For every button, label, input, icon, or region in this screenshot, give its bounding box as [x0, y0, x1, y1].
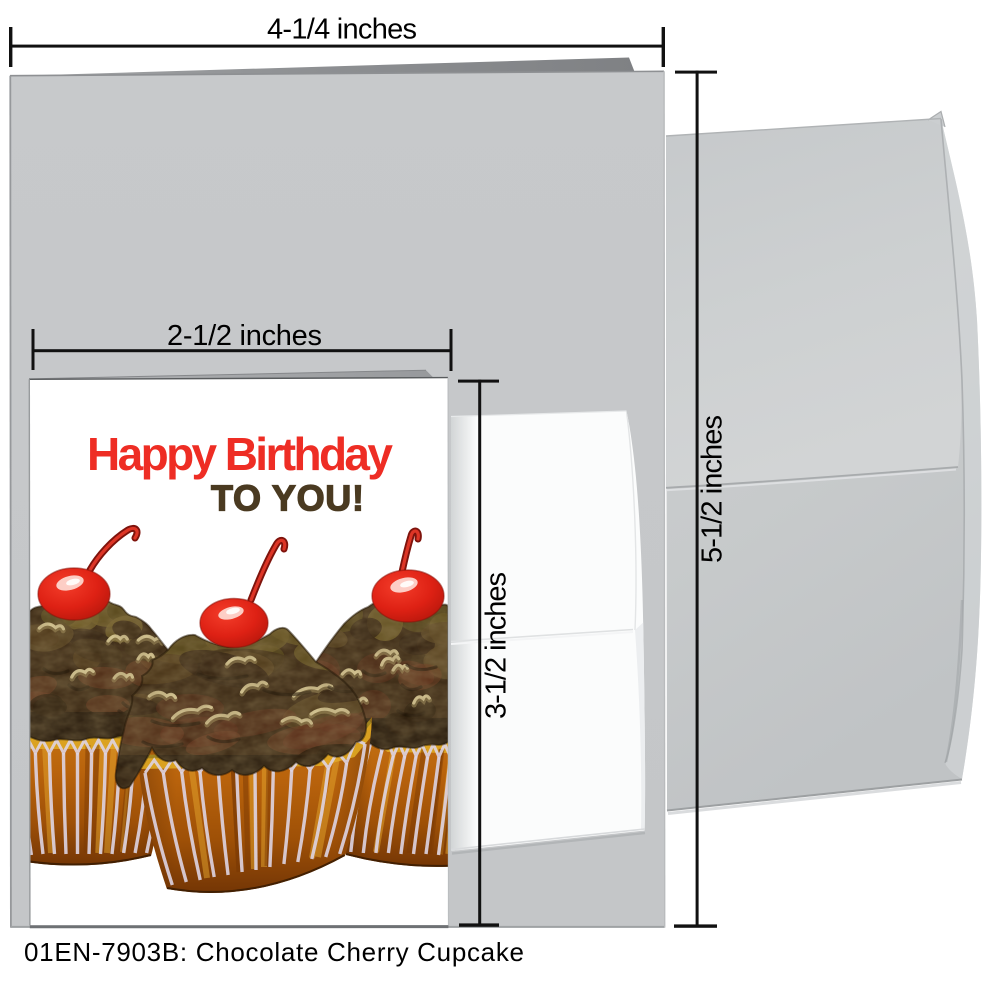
svg-text:4-1/4 inches: 4-1/4 inches: [267, 14, 417, 46]
svg-text:5-1/2 inches: 5-1/2 inches: [697, 415, 729, 563]
svg-text:TO YOU!: TO YOU!: [211, 478, 364, 519]
svg-text:01EN-7903B: Chocolate Cherry C: 01EN-7903B: Chocolate Cherry Cupcake: [24, 937, 524, 967]
svg-text:Happy Birthday: Happy Birthday: [87, 428, 393, 480]
svg-text:2-1/2 inches: 2-1/2 inches: [167, 320, 322, 352]
svg-text:3-1/2 inches: 3-1/2 inches: [481, 572, 513, 719]
